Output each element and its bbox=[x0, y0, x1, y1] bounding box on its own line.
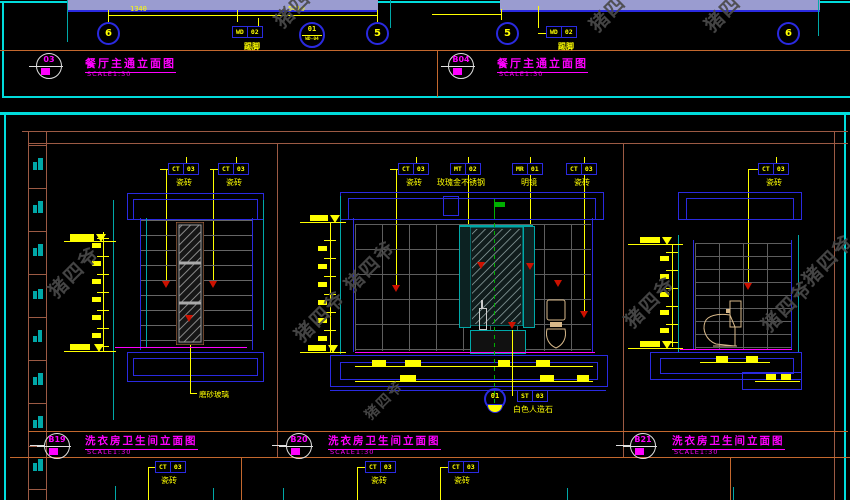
viewport2-top-border bbox=[0, 112, 850, 115]
line bbox=[623, 446, 657, 447]
leader-arrow bbox=[526, 263, 534, 270]
line bbox=[733, 487, 734, 500]
basin-detail-number: 01 bbox=[486, 392, 504, 400]
table-glyph bbox=[38, 158, 43, 170]
level-marker-symbol bbox=[330, 215, 340, 223]
dim-value-block bbox=[536, 360, 550, 366]
drawing-scale: SCALE1:30 bbox=[330, 448, 374, 456]
tag-code: CT bbox=[449, 462, 463, 472]
title-bubble-sheet bbox=[453, 68, 462, 75]
level-marker-value bbox=[70, 234, 94, 241]
title-bubble-number: B04 bbox=[449, 55, 473, 64]
tag-num: 03 bbox=[581, 164, 596, 174]
level-marker-line bbox=[300, 352, 346, 353]
title-bubble-sheet bbox=[291, 448, 300, 455]
viewport2-left-border bbox=[4, 112, 6, 500]
dim-tick bbox=[108, 10, 109, 22]
table-glyph bbox=[38, 459, 43, 471]
material-tag-ct03: CT03 bbox=[168, 163, 199, 175]
title-bubble: B20 bbox=[286, 433, 312, 459]
title-bubble-number: 03 bbox=[37, 55, 61, 64]
tag-label: 明镜 bbox=[521, 177, 537, 188]
table-glyph bbox=[38, 330, 42, 342]
leader-arrow bbox=[554, 280, 562, 287]
grid-bubble: 5 bbox=[496, 22, 519, 45]
level-marker-value bbox=[70, 344, 90, 350]
faucet-tip bbox=[481, 300, 483, 308]
tag-code: MR bbox=[513, 164, 527, 174]
title-bubble: 03 bbox=[36, 53, 62, 79]
mirror-frame bbox=[523, 226, 535, 328]
table-glyph bbox=[33, 291, 37, 299]
tag-num: 03 bbox=[183, 164, 198, 174]
tag-num: 03 bbox=[773, 164, 788, 174]
material-tag-ct03: CT03 bbox=[365, 461, 396, 473]
tag-label: 瓷砖 bbox=[454, 475, 470, 486]
base-band-inner bbox=[133, 358, 258, 376]
line bbox=[283, 488, 284, 500]
tag-label: 瓷砖 bbox=[371, 475, 387, 486]
tag-code: CT bbox=[219, 164, 233, 174]
level-marker-line bbox=[628, 244, 683, 245]
slab-band-right bbox=[500, 0, 820, 12]
level-marker-value bbox=[640, 237, 660, 243]
tag-num: 03 bbox=[532, 391, 547, 401]
table-glyph bbox=[38, 416, 43, 428]
level-marker-value bbox=[310, 215, 328, 221]
grid-bubble-label: 6 bbox=[785, 28, 792, 39]
title-bubble-number: B20 bbox=[287, 435, 311, 444]
line bbox=[146, 218, 147, 348]
line bbox=[279, 446, 313, 447]
leader-line bbox=[148, 467, 149, 500]
tag-label: 瓷砖 bbox=[226, 177, 242, 188]
tag-num: 03 bbox=[233, 164, 248, 174]
line bbox=[441, 66, 475, 67]
detail-bubble-top: 01 bbox=[301, 25, 323, 33]
tag-code: CT bbox=[759, 164, 773, 174]
floor-line bbox=[680, 349, 792, 350]
level-marker-symbol bbox=[96, 234, 106, 242]
table-glyph bbox=[33, 463, 37, 471]
level-marker-line bbox=[64, 241, 116, 242]
level-marker-line bbox=[628, 348, 683, 349]
wall-edge bbox=[693, 240, 694, 350]
material-tag-ct03: CT03 bbox=[758, 163, 789, 175]
tag-label: 瓷砖 bbox=[161, 475, 177, 486]
tag-label: 白色人造石 bbox=[513, 404, 553, 415]
tag-num: 02 bbox=[561, 27, 576, 37]
dim-value-block bbox=[498, 360, 510, 366]
leader-line bbox=[357, 467, 358, 500]
leader-arrow bbox=[392, 285, 400, 292]
table-glyph bbox=[33, 336, 37, 342]
drawing-scale: SCALE1:30 bbox=[87, 448, 131, 456]
tag-label: 瓷砖 bbox=[766, 177, 782, 188]
leader-line bbox=[440, 467, 448, 468]
level-marker-value bbox=[640, 341, 660, 347]
tag-num: 03 bbox=[463, 462, 478, 472]
dim-line bbox=[432, 14, 502, 15]
base-line bbox=[330, 390, 606, 391]
dim-tick bbox=[237, 10, 238, 22]
dim-value-block bbox=[716, 356, 728, 362]
material-tag-wd02: WD02 bbox=[232, 26, 263, 38]
cornice-inner bbox=[133, 199, 258, 220]
toilet-side bbox=[699, 299, 745, 349]
tag-label: 玫瑰金不锈钢 bbox=[437, 177, 485, 188]
leader-arrow bbox=[580, 311, 588, 318]
table-glyph bbox=[33, 205, 37, 213]
leader-arrow bbox=[162, 281, 170, 288]
title-bubble-sheet bbox=[49, 448, 58, 455]
leader-line bbox=[538, 33, 546, 34]
title-bubble-number: B21 bbox=[631, 435, 655, 444]
wall-edge bbox=[252, 218, 253, 350]
tag-label: 踢脚 bbox=[558, 41, 574, 52]
viewport1-left-border bbox=[2, 1, 4, 97]
tag-code: CT bbox=[567, 164, 581, 174]
drawing-scale: SCALE1:30 bbox=[499, 70, 543, 78]
leader-arrow bbox=[185, 315, 193, 322]
tag-num: 02 bbox=[465, 164, 480, 174]
faucet bbox=[479, 308, 487, 330]
floor-line bbox=[115, 347, 247, 348]
drawing-scale: SCALE1:30 bbox=[87, 70, 131, 78]
cornice-inner bbox=[686, 198, 794, 220]
line bbox=[263, 200, 264, 330]
material-tag-ct03: CT03 bbox=[566, 163, 597, 175]
tag-code: CT bbox=[169, 164, 183, 174]
tag-num: 01 bbox=[527, 164, 542, 174]
tag-label: 瓷砖 bbox=[574, 177, 590, 188]
frame-line bbox=[241, 458, 242, 500]
leader-line bbox=[190, 393, 197, 394]
leader-line bbox=[748, 169, 758, 170]
grid-bubble-label: 5 bbox=[504, 28, 511, 39]
level-marker-symbol bbox=[662, 237, 672, 245]
leader-arrow bbox=[209, 281, 217, 288]
mirror bbox=[470, 227, 523, 326]
tag-code: WD bbox=[233, 27, 247, 37]
frame-line bbox=[10, 457, 850, 458]
grid-bubble: 5 bbox=[366, 22, 389, 45]
frame-line bbox=[28, 431, 848, 432]
frame-line bbox=[730, 458, 731, 500]
table-glyph bbox=[38, 201, 43, 213]
material-tag-wd02: WD02 bbox=[546, 26, 577, 38]
table-glyph bbox=[33, 420, 37, 428]
toilet-front bbox=[543, 298, 569, 350]
dim-tick bbox=[501, 9, 502, 20]
viewport2-right-border bbox=[844, 112, 846, 500]
line bbox=[115, 486, 116, 500]
tag-num: 03 bbox=[170, 462, 185, 472]
tag-code: CT bbox=[366, 462, 380, 472]
leader-arrow bbox=[744, 283, 752, 290]
grid-bubble: 6 bbox=[97, 22, 120, 45]
tag-code: MT bbox=[451, 164, 465, 174]
frame-line bbox=[437, 50, 438, 97]
dim-value-block bbox=[372, 360, 386, 366]
line bbox=[567, 488, 568, 500]
title-bubble: B04 bbox=[448, 53, 474, 79]
centerline bbox=[494, 215, 495, 415]
title-bubble: B21 bbox=[630, 433, 656, 459]
material-tag-ct03: CT03 bbox=[448, 461, 479, 473]
floor-line bbox=[355, 352, 595, 353]
level-marker-symbol bbox=[328, 345, 338, 353]
tag-code: CT bbox=[399, 164, 413, 174]
leader-line bbox=[258, 18, 259, 26]
title-bubble-sheet bbox=[41, 68, 50, 75]
table-glyph bbox=[33, 248, 37, 256]
dim-value-block bbox=[577, 375, 589, 381]
dim-value: 1340 bbox=[130, 5, 147, 13]
line bbox=[390, 0, 391, 28]
slab-band-left bbox=[68, 0, 378, 12]
level-marker-symbol bbox=[662, 341, 672, 349]
line bbox=[818, 0, 819, 36]
dim-line bbox=[108, 15, 378, 16]
detail-bubble: 01 WD-04 bbox=[299, 22, 325, 48]
frame-line bbox=[22, 131, 848, 132]
tag-label: 瓷砖 bbox=[406, 177, 422, 188]
dim-line bbox=[700, 362, 770, 363]
cad-canvas: 1340 5410 6 5 5 6 WD02 踢脚 WD02 踢脚 01 WD-… bbox=[0, 0, 850, 500]
line bbox=[678, 235, 679, 353]
tag-code: CT bbox=[156, 462, 170, 472]
leader-arrow bbox=[477, 262, 485, 269]
cornice-inner bbox=[348, 198, 596, 220]
line bbox=[213, 488, 214, 500]
dim-line bbox=[755, 381, 800, 382]
mirror-cap bbox=[459, 225, 533, 227]
tag-code: ST bbox=[518, 391, 532, 401]
table-glyph bbox=[33, 377, 37, 385]
line bbox=[67, 0, 68, 42]
leader-line bbox=[210, 169, 218, 170]
frame-line bbox=[623, 143, 624, 457]
grid-bubble-label: 6 bbox=[105, 28, 112, 39]
table-glyph bbox=[33, 162, 37, 170]
material-tag-st03: ST03 bbox=[517, 390, 548, 402]
leader-line bbox=[440, 467, 441, 500]
leader-arrow bbox=[508, 322, 516, 329]
line bbox=[37, 446, 71, 447]
dim-value-block bbox=[405, 360, 421, 366]
wall-edge bbox=[592, 218, 593, 352]
dim-value-block bbox=[400, 375, 416, 381]
tag-num: 03 bbox=[413, 164, 428, 174]
viewport1-bottom-border bbox=[2, 96, 850, 98]
table-glyph bbox=[38, 373, 43, 385]
drawing-scale: SCALE1:30 bbox=[674, 448, 718, 456]
tag-label: 瓷砖 bbox=[176, 177, 192, 188]
material-tag-ct03: CT03 bbox=[155, 461, 186, 473]
dim-tick bbox=[377, 10, 378, 22]
material-note: 磨砂玻璃 bbox=[199, 389, 229, 400]
grid-bubble-label: 5 bbox=[374, 28, 381, 39]
material-tag-mr01: MR01 bbox=[512, 163, 543, 175]
leader-line bbox=[512, 330, 513, 396]
frosted-glass-door bbox=[176, 222, 204, 345]
material-tag-ct03: CT03 bbox=[398, 163, 429, 175]
grid-bubble: 6 bbox=[777, 22, 800, 45]
title-bubble-sheet bbox=[635, 448, 644, 455]
table-glyph bbox=[38, 244, 43, 256]
table-glyph bbox=[38, 289, 43, 299]
level-marker-line bbox=[64, 351, 116, 352]
line bbox=[113, 200, 114, 420]
dim-value-block bbox=[766, 374, 776, 380]
frame-line bbox=[834, 131, 835, 500]
cornice-notch bbox=[443, 196, 459, 216]
title-bubble: B19 bbox=[44, 433, 70, 459]
vanity-cabinet bbox=[470, 330, 526, 354]
title-bubble-number: B19 bbox=[45, 435, 69, 444]
detail-bubble-bottom: WD-04 bbox=[301, 37, 323, 42]
dim-value-block bbox=[746, 356, 758, 362]
material-tag-mt02: MT02 bbox=[450, 163, 481, 175]
wall-edge bbox=[140, 218, 141, 350]
line bbox=[302, 35, 322, 36]
material-tag-ct03: CT03 bbox=[218, 163, 249, 175]
dim-line bbox=[355, 366, 593, 367]
tag-num: 02 bbox=[247, 27, 262, 37]
dim-value-block bbox=[781, 374, 791, 380]
frame-line bbox=[0, 50, 850, 51]
level-marker-symbol bbox=[94, 344, 104, 352]
tag-num: 03 bbox=[380, 462, 395, 472]
basin-symbol bbox=[487, 404, 503, 413]
tag-label: 踢脚 bbox=[244, 41, 260, 52]
leader-line bbox=[357, 467, 365, 468]
line bbox=[29, 66, 63, 67]
tag-code: WD bbox=[547, 27, 561, 37]
frame-line bbox=[277, 143, 278, 457]
level-marker-value bbox=[308, 345, 326, 351]
frame-line bbox=[28, 143, 848, 144]
dim-value-block bbox=[540, 375, 554, 381]
leader-line bbox=[538, 6, 539, 28]
centerline-flag bbox=[495, 202, 505, 207]
